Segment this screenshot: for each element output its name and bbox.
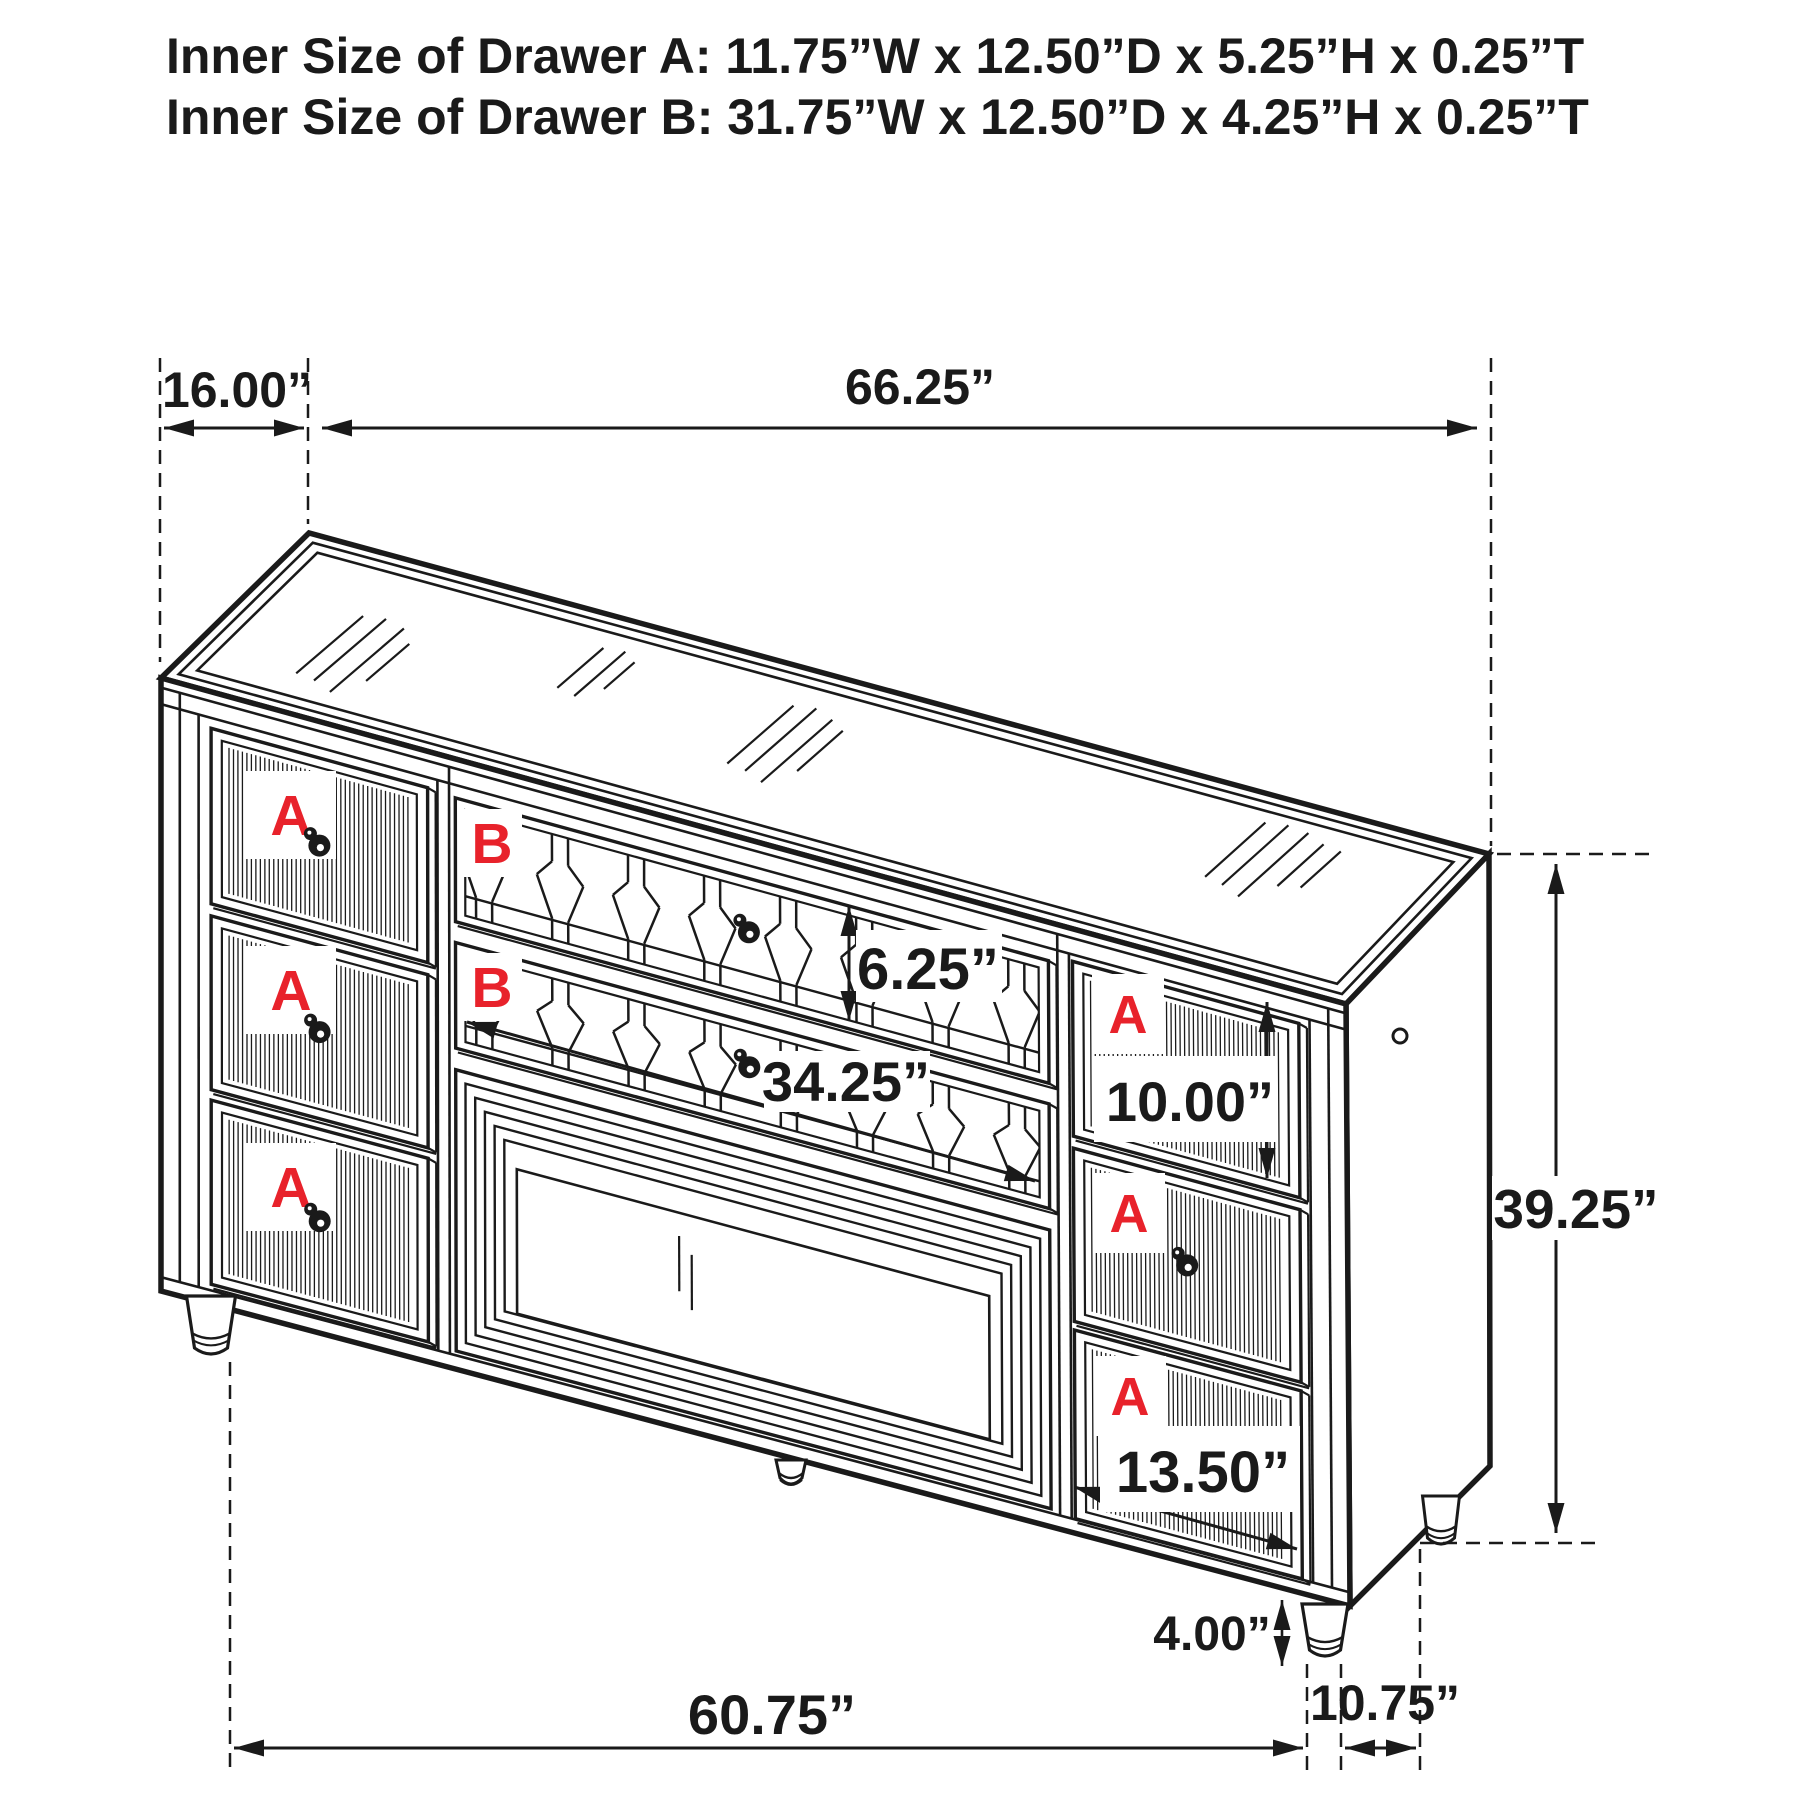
- svg-text:A: A: [270, 784, 311, 848]
- svg-text:B: B: [471, 956, 512, 1020]
- svg-text:10.00”: 10.00”: [1106, 1070, 1274, 1133]
- svg-text:A: A: [1110, 1184, 1149, 1244]
- svg-text:6.25”: 6.25”: [857, 937, 999, 1002]
- svg-text:10.75”: 10.75”: [1310, 1675, 1460, 1731]
- svg-text:39.25”: 39.25”: [1493, 1178, 1658, 1240]
- svg-text:4.00”: 4.00”: [1153, 1608, 1270, 1661]
- svg-text:16.00”: 16.00”: [162, 362, 312, 418]
- svg-text:A: A: [1111, 1367, 1150, 1427]
- svg-text:13.50”: 13.50”: [1116, 1440, 1290, 1505]
- svg-text:A: A: [270, 959, 311, 1023]
- svg-text:60.75”: 60.75”: [688, 1683, 856, 1746]
- svg-text:A: A: [1109, 985, 1148, 1045]
- svg-text:B: B: [471, 812, 512, 876]
- svg-text:34.25”: 34.25”: [762, 1050, 930, 1113]
- svg-text:66.25”: 66.25”: [845, 359, 995, 415]
- svg-text:Inner Size of Drawer A: 11.75”: Inner Size of Drawer A: 11.75”W x 12.50”…: [166, 28, 1584, 84]
- svg-text:Inner Size of Drawer B: 31.75”: Inner Size of Drawer B: 31.75”W x 12.50”…: [166, 89, 1589, 145]
